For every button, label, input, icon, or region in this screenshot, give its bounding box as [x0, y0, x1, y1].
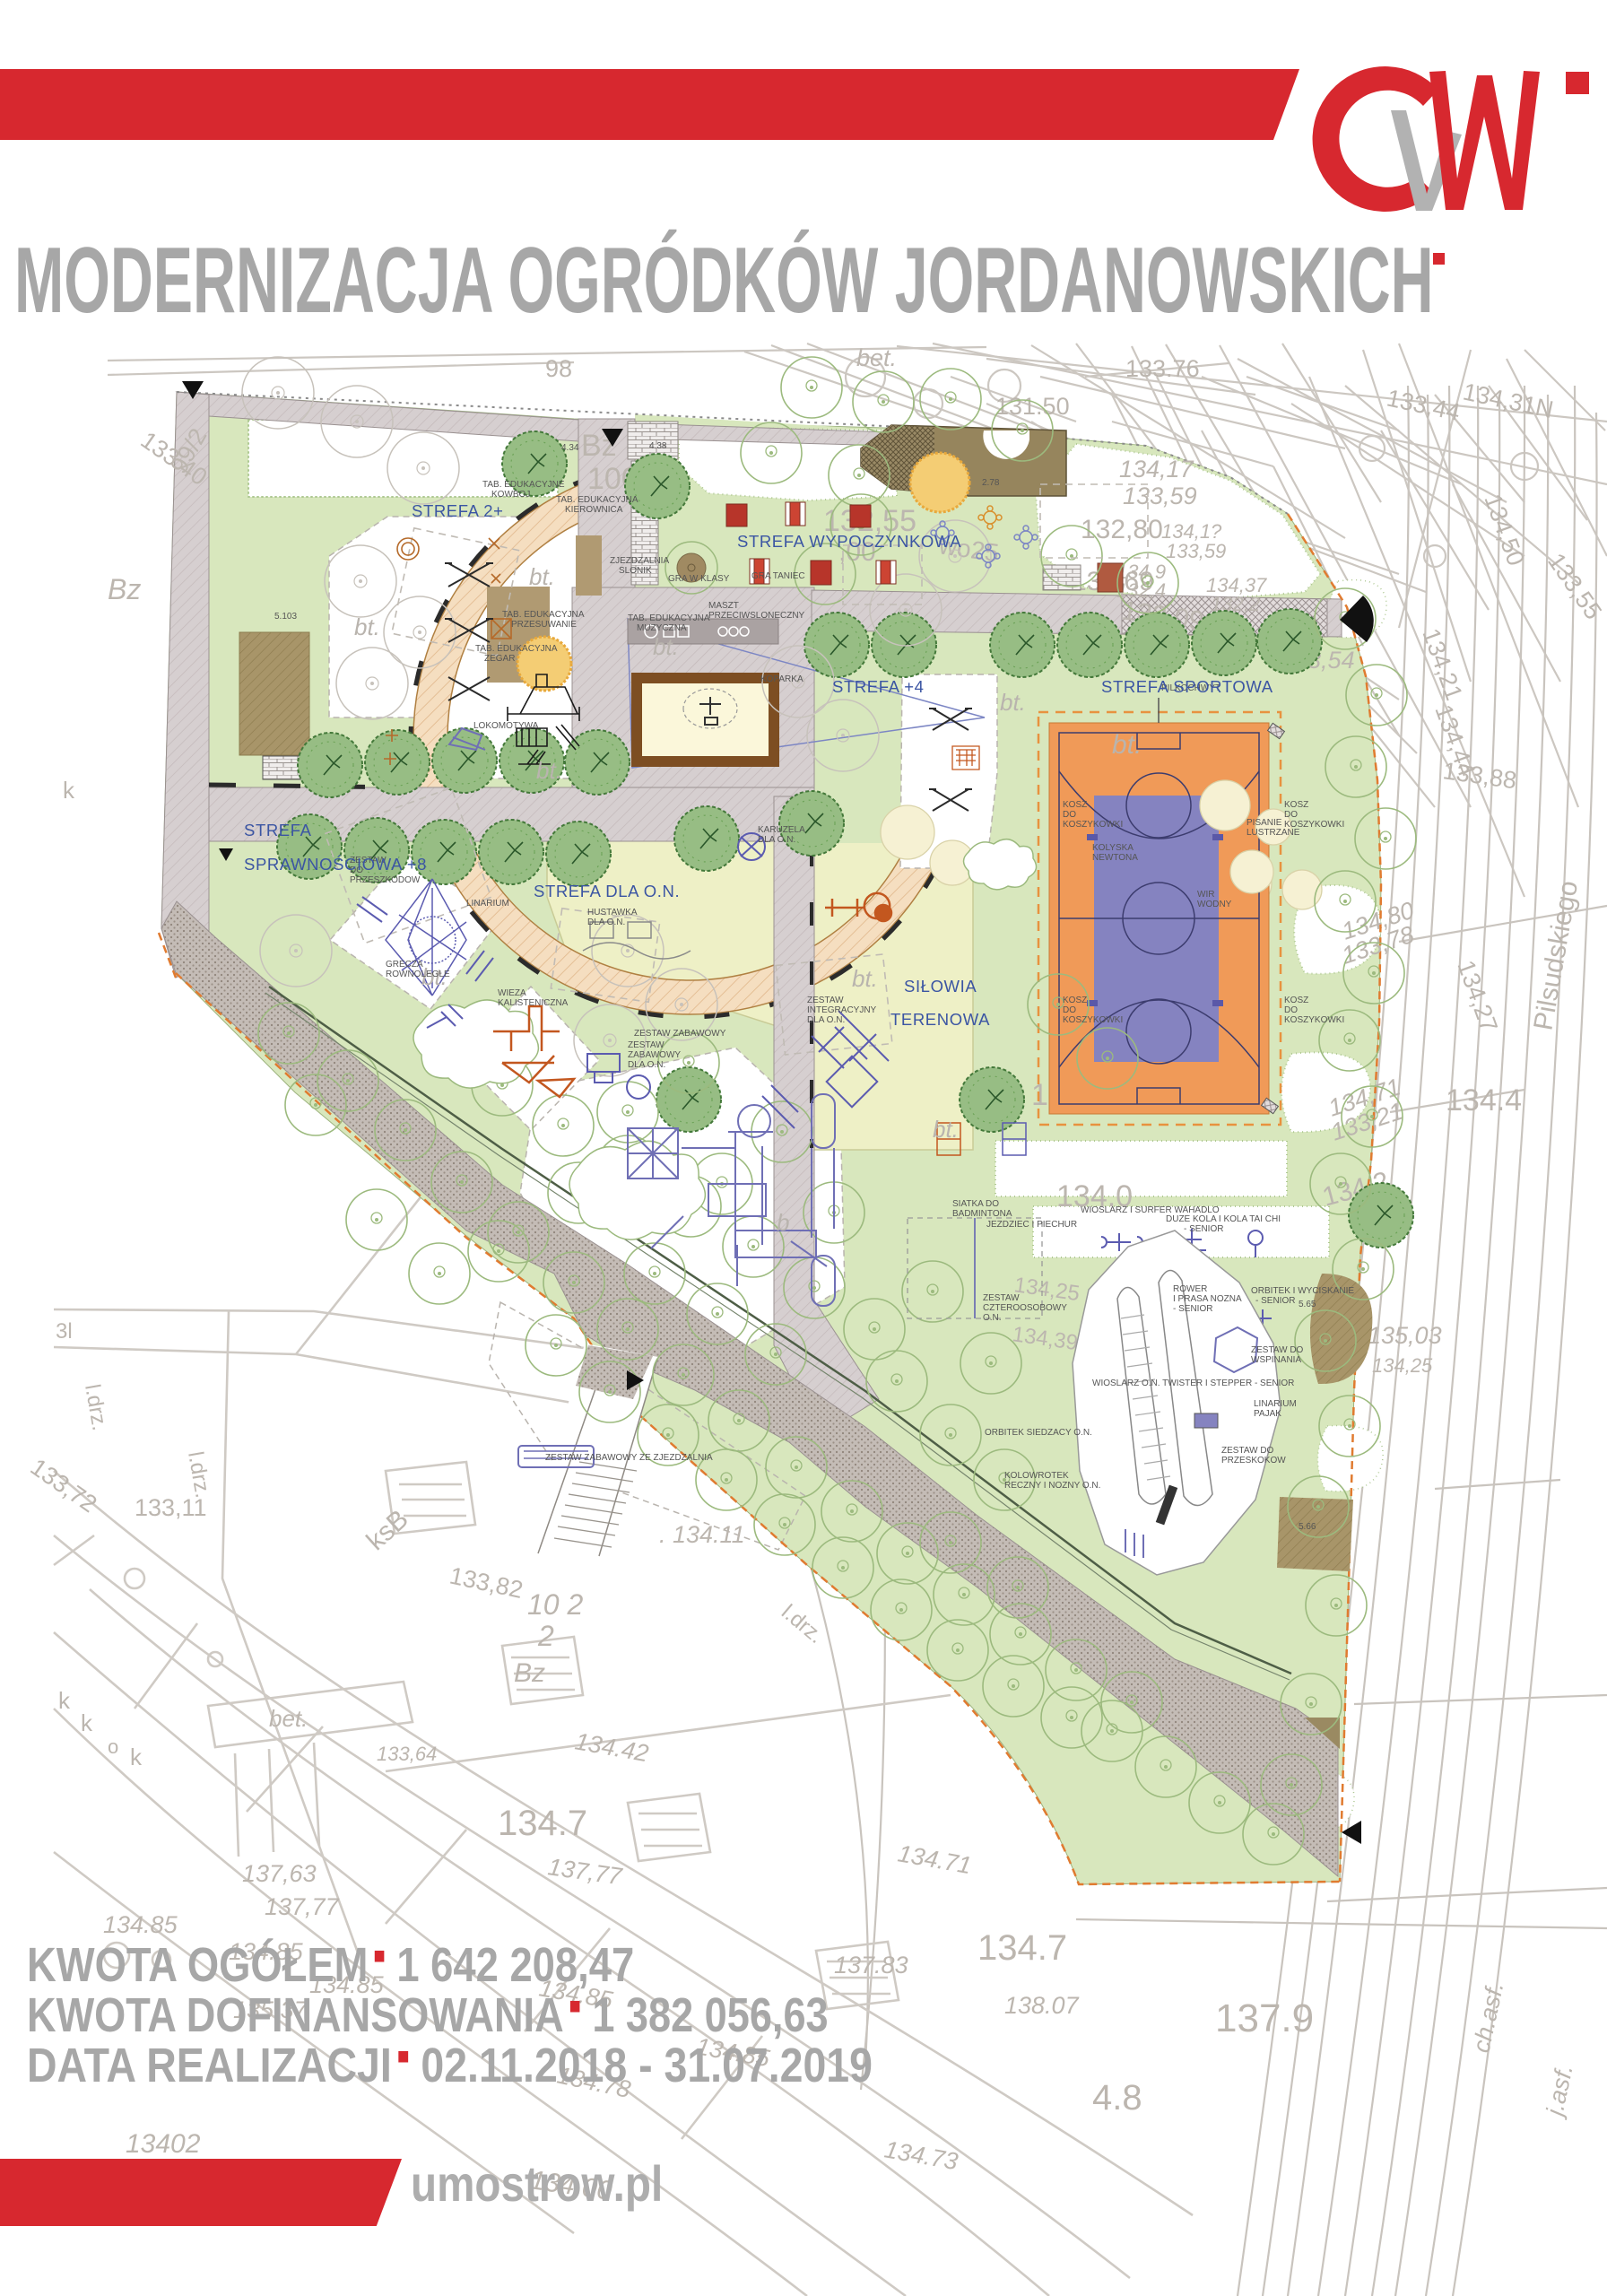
svg-text:DLA O.N.: DLA O.N. [758, 835, 795, 845]
svg-text:KOSZYKOWKI: KOSZYKOWKI [1063, 1015, 1123, 1025]
svg-text:134,25: 134,25 [1372, 1354, 1433, 1377]
svg-text:LINARIUM: LINARIUM [466, 899, 509, 909]
svg-text:PISANIE: PISANIE [1247, 818, 1282, 828]
svg-text:13402: 13402 [126, 2129, 201, 2159]
svg-text:TAB. EDUKACYJNA: TAB. EDUKACYJNA [475, 644, 558, 654]
svg-text:ZESTAW ZABAWOWY: ZESTAW ZABAWOWY [634, 1029, 726, 1039]
svg-text:bt.: bt. [852, 965, 878, 992]
svg-text:bt.: bt. [933, 1116, 959, 1143]
svg-text:SIATKA DO: SIATKA DO [952, 1199, 999, 1209]
svg-text:KALISTENICZNA: KALISTENICZNA [498, 998, 569, 1008]
svg-text:DO: DO [1063, 810, 1076, 820]
svg-text:JEZDZIEC I PIECHUR: JEZDZIEC I PIECHUR [986, 1220, 1077, 1230]
svg-text:KOLYSKA: KOLYSKA [1092, 843, 1134, 853]
svg-text:KOSZ: KOSZ [1063, 996, 1087, 1005]
svg-text:WIOSLARZ O.N. TWISTER I STEPPE: WIOSLARZ O.N. TWISTER I STEPPER - SENIOR [1092, 1378, 1294, 1388]
svg-text:GRA TANIEC: GRA TANIEC [751, 571, 805, 581]
svg-text:k: k [130, 1744, 143, 1770]
svg-text:4.8: 4.8 [1092, 2078, 1142, 2118]
svg-text:4.38: 4.38 [649, 441, 667, 451]
svg-text:l.drz.: l.drz. [183, 1449, 215, 1500]
svg-text:bt.: bt. [653, 633, 679, 660]
svg-text:KOLOWROTEK: KOLOWROTEK [1004, 1471, 1069, 1481]
svg-text:WSPINANIA: WSPINANIA [1251, 1355, 1301, 1365]
svg-text:DUZE KOLA I KOLA TAI CHI: DUZE KOLA I KOLA TAI CHI [1166, 1214, 1281, 1224]
svg-text:10 2: 10 2 [527, 1588, 583, 1621]
svg-text:ORBITEK I WYCISKANIE: ORBITEK I WYCISKANIE [1251, 1286, 1354, 1296]
svg-text:135,03: 135,03 [1368, 1322, 1442, 1349]
svg-text:RECZNY I NOZNY O.N.: RECZNY I NOZNY O.N. [1004, 1481, 1100, 1491]
svg-text:133,72: 133,72 [26, 1453, 102, 1518]
svg-text:o: o [108, 1735, 118, 1758]
svg-text:Bz: Bz [514, 1658, 545, 1688]
svg-text:- SENIOR: - SENIOR [1255, 1296, 1295, 1306]
svg-text:KOWBOJ: KOWBOJ [491, 490, 530, 500]
svg-text:ZESTAW: ZESTAW [807, 996, 844, 1005]
svg-text:132,80: 132,80 [1081, 515, 1163, 544]
svg-text:STREFA +4: STREFA +4 [832, 677, 925, 696]
svg-text:KOSZ: KOSZ [1284, 996, 1308, 1005]
svg-text:STREFA: STREFA [244, 821, 312, 839]
svg-text:HUSTAWKA: HUSTAWKA [587, 908, 638, 918]
svg-text:PRZESUWANIE: PRZESUWANIE [511, 620, 577, 630]
svg-text:STREFA SPORTOWA: STREFA SPORTOWA [1101, 677, 1273, 696]
svg-text:ZJEZDZALNIA: ZJEZDZALNIA [610, 556, 669, 566]
svg-text:133,59: 133,59 [1166, 540, 1226, 562]
svg-text:k: k [63, 777, 75, 804]
svg-text:134.4: 134.4 [1446, 1083, 1522, 1118]
svg-text:TAB. EDUKACYJNE: TAB. EDUKACYJNE [482, 480, 565, 490]
svg-text:WODNY: WODNY [1197, 900, 1232, 909]
svg-text:134.7: 134.7 [498, 1804, 587, 1843]
svg-text:ROWNOLEGLE: ROWNOLEGLE [386, 970, 450, 979]
svg-text:LINARIUM: LINARIUM [1254, 1399, 1297, 1409]
svg-text:137,77: 137,77 [265, 1893, 340, 1920]
svg-text:134,17: 134,17 [1119, 456, 1194, 483]
svg-text:137,63: 137,63 [242, 1860, 317, 1887]
svg-text:ZEGAR: ZEGAR [484, 654, 515, 664]
svg-text:STREFA WYPOCZYNKOWA: STREFA WYPOCZYNKOWA [737, 532, 961, 551]
svg-text:133,59: 133,59 [1123, 483, 1197, 509]
svg-text:2.78: 2.78 [982, 478, 1000, 488]
svg-text:ROWER: ROWER [1173, 1284, 1207, 1294]
svg-text:WIR: WIR [1197, 890, 1214, 900]
svg-text:PAJAK: PAJAK [1254, 1409, 1281, 1419]
svg-text:ZESTAW: ZESTAW [628, 1040, 665, 1050]
svg-text:Bz: Bz [108, 573, 141, 605]
svg-text:- SENIOR: - SENIOR [1173, 1304, 1212, 1314]
svg-text:bt.: bt. [354, 613, 380, 640]
svg-text:134.42: 134.42 [573, 1727, 651, 1767]
svg-text:KOSZYKOWKI: KOSZYKOWKI [1284, 820, 1344, 830]
svg-text:NEWTONA: NEWTONA [1092, 853, 1138, 863]
svg-text:I PRASA NOZNA: I PRASA NOZNA [1173, 1294, 1242, 1304]
svg-text:BADMINTONA: BADMINTONA [952, 1209, 1012, 1219]
svg-text:CZTEROOSOBOWY: CZTEROOSOBOWY [983, 1303, 1067, 1313]
svg-text:5.65: 5.65 [1299, 1300, 1316, 1309]
svg-text:98: 98 [545, 355, 572, 382]
svg-text:134,27: 134,27 [1452, 957, 1502, 1036]
svg-text:STREFA DLA O.N.: STREFA DLA O.N. [534, 882, 680, 900]
svg-text:O.N.: O.N. [983, 1313, 1002, 1323]
svg-text:133.76: 133.76 [1125, 355, 1200, 382]
svg-text:PRZESZKODOW: PRZESZKODOW [350, 875, 421, 885]
svg-text:4.34: 4.34 [561, 443, 579, 453]
svg-text:SLONIK: SLONIK [619, 566, 652, 576]
svg-text:k: k [81, 1709, 93, 1736]
svg-text:133,64: 133,64 [377, 1743, 437, 1765]
svg-text:TAB. EDUKACYJNA: TAB. EDUKACYJNA [628, 613, 710, 623]
svg-text:KOPARKA: KOPARKA [760, 674, 803, 684]
svg-text:KOSZ: KOSZ [1284, 800, 1308, 810]
svg-text:TAB. EDUKACYJNA: TAB. EDUKACYJNA [502, 610, 585, 620]
svg-text:133,82: 133,82 [447, 1562, 526, 1605]
svg-text:SIŁOWIA: SIŁOWIA [904, 977, 977, 996]
svg-text:b: b [777, 1209, 789, 1236]
svg-text:133,44: 133,44 [1385, 385, 1463, 427]
svg-text:137.83: 137.83 [834, 1952, 908, 1979]
svg-text:DO: DO [1063, 1005, 1076, 1015]
svg-text:k: k [58, 1687, 71, 1714]
svg-text:DO: DO [1284, 810, 1298, 820]
svg-text:TERENOWA: TERENOWA [890, 1010, 990, 1029]
svg-text:ZABAWOWY: ZABAWOWY [628, 1050, 681, 1060]
svg-text:STREFA 2+: STREFA 2+ [412, 501, 504, 520]
svg-text:5.103: 5.103 [274, 612, 297, 622]
svg-text:ZESTAW DO: ZESTAW DO [1251, 1345, 1304, 1355]
svg-text:PRZESKOKOW: PRZESKOKOW [1221, 1456, 1286, 1465]
svg-text:ORBITEK SIEDZACY O.N.: ORBITEK SIEDZACY O.N. [985, 1428, 1092, 1438]
svg-text:TAB. EDUKACYJNA: TAB. EDUKACYJNA [556, 495, 638, 505]
svg-text:ch.asf.: ch.asf. [1468, 1979, 1509, 2055]
svg-text:134.71: 134.71 [896, 1839, 974, 1879]
svg-text:DLA O.N.: DLA O.N. [807, 1015, 845, 1025]
svg-text:SPRAWNOŚCIOWA +8: SPRAWNOŚCIOWA +8 [244, 855, 427, 874]
svg-text:5.66: 5.66 [1299, 1522, 1316, 1532]
svg-text:ksB: ksB [361, 1504, 414, 1556]
svg-text:ZESTAW ZABAWOWY ZE ZJEZDZALNIA: ZESTAW ZABAWOWY ZE ZJEZDZALNIA [545, 1453, 713, 1463]
svg-text:GRECZA: GRECZA [386, 960, 423, 970]
svg-text:WIEZA: WIEZA [498, 988, 526, 998]
svg-text:ZESTAW DO: ZESTAW DO [1221, 1446, 1274, 1456]
svg-text:INTEGRACYJNY: INTEGRACYJNY [807, 1005, 877, 1015]
svg-text:KIEROWNICA: KIEROWNICA [565, 505, 623, 515]
svg-text:131.50: 131.50 [995, 393, 1070, 420]
svg-text:l.drz.: l.drz. [777, 1600, 828, 1648]
svg-text:KOSZ: KOSZ [1063, 800, 1087, 810]
svg-text:bt.: bt. [1000, 689, 1026, 716]
svg-text:KARUZELA: KARUZELA [758, 825, 805, 835]
svg-text:3l: 3l [56, 1319, 73, 1344]
svg-text:DO: DO [1284, 1005, 1298, 1015]
svg-text:LOKOMOTYWA: LOKOMOTYWA [473, 721, 539, 731]
svg-text:bt.: bt. [529, 563, 555, 590]
svg-text:137.9: 137.9 [1215, 1996, 1314, 2040]
svg-text:bt.: bt. [1112, 730, 1142, 760]
svg-text:- SENIOR: - SENIOR [1184, 1224, 1223, 1234]
svg-text:ZESTAW: ZESTAW [983, 1293, 1020, 1303]
svg-text:. 134.11: . 134.11 [659, 1521, 745, 1548]
svg-text:j.asf.: j.asf. [1541, 2062, 1578, 2121]
svg-text:134.7: 134.7 [977, 1928, 1067, 1968]
svg-text:MASZT: MASZT [708, 601, 739, 611]
svg-text:134,31N: 134,31N [1461, 378, 1556, 424]
svg-text:133,88: 133,88 [1441, 757, 1518, 794]
svg-text:2: 2 [537, 1620, 554, 1652]
svg-text:bt.: bt. [536, 757, 562, 784]
svg-text:bet.: bet. [269, 1705, 308, 1732]
svg-text:DLA O.N.: DLA O.N. [587, 918, 625, 927]
svg-text:PRZECIWSLONECZNY: PRZECIWSLONECZNY [708, 611, 805, 621]
svg-text:l.drz.: l.drz. [80, 1382, 112, 1432]
svg-text:MUZYCZNA: MUZYCZNA [637, 623, 687, 633]
svg-text:KOSZYKOWKI: KOSZYKOWKI [1284, 1015, 1344, 1025]
svg-text:GRA W KLASY: GRA W KLASY [668, 574, 730, 584]
svg-text:138.07: 138.07 [1004, 1992, 1080, 2019]
svg-text:DLA O.N.: DLA O.N. [628, 1060, 665, 1070]
svg-text:KOSZYKOWKI: KOSZYKOWKI [1063, 820, 1123, 830]
svg-text:Pilsudskiego: Pilsudskiego [1528, 879, 1584, 1033]
svg-text:bet.: bet. [856, 344, 897, 371]
svg-text:134,50: 134,50 [1479, 491, 1529, 570]
svg-text:133,11: 133,11 [135, 1494, 207, 1521]
